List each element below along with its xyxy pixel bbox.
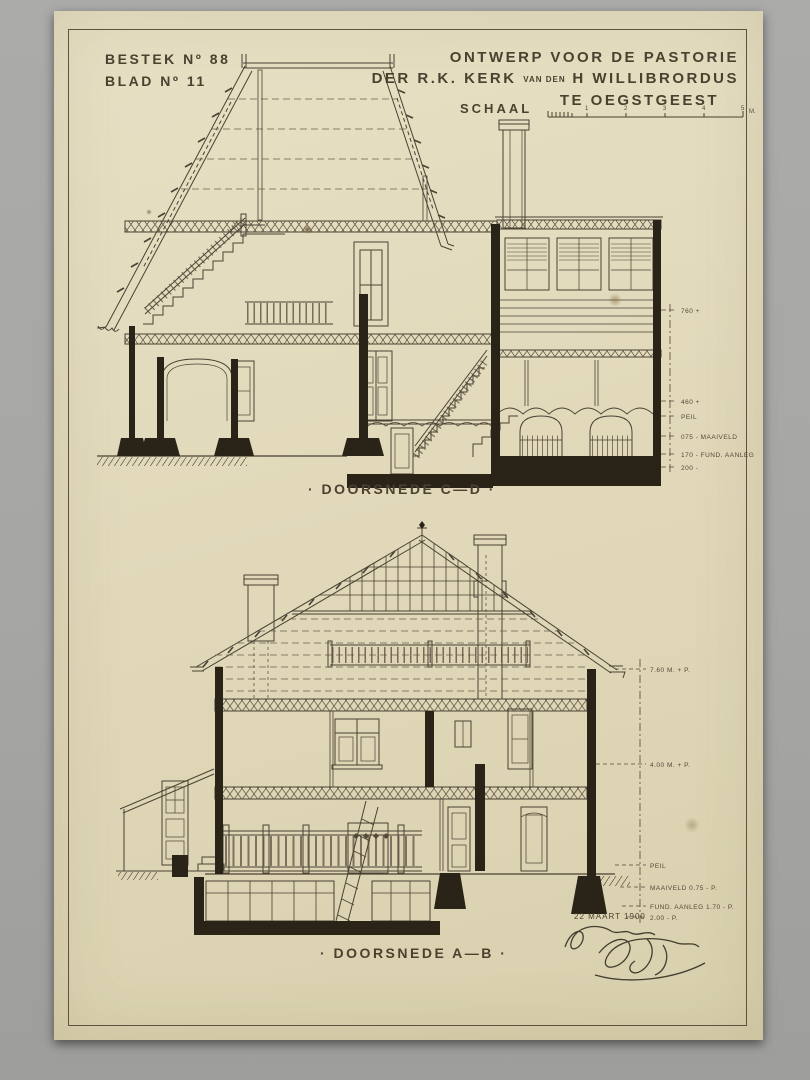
level-label-cd-2: 460 + — [681, 399, 700, 406]
signature-pastor-icon — [599, 939, 699, 975]
level-label-cd-1: 760 + — [681, 308, 700, 315]
level-label-ab-2: 4.00 M. + P. — [650, 762, 690, 769]
ground-floor-ab — [223, 799, 547, 873]
caption-doorsnede-ab: · DOORSNEDE A—B · — [320, 945, 507, 961]
level-label-cd-5: 170 - FUND. AANLEG — [681, 452, 754, 459]
roof-cd — [97, 54, 454, 331]
caption-doorsnede-cd: · DOORSNEDE C—D · — [308, 481, 496, 497]
cellar-ab — [206, 801, 430, 921]
chimney-cd — [499, 120, 529, 228]
attic-interior-ab — [215, 619, 587, 691]
level-label-ab-5: FUND. AANLEG 1.70 - P. — [650, 904, 734, 911]
main-staircase-cd — [413, 350, 487, 464]
attic-balustrade-ab — [328, 641, 530, 667]
attic-interior-cd — [181, 70, 428, 221]
signature-flourish-icon — [595, 963, 705, 980]
floor-joist-bands-ab — [215, 699, 587, 799]
floor-joist-bands-cd — [125, 220, 661, 357]
chimneys-ab — [244, 535, 506, 699]
level-label-cd-3: PEIL — [681, 414, 697, 421]
level-label-ab-4: MAAIVELD 0.75 - P. — [650, 885, 717, 892]
ground-line-left-cd — [97, 456, 347, 466]
level-label-cd-4: 075 - MAAIVELD — [681, 434, 738, 441]
drawing-sheet: BESTEK Nº 88 BLAD Nº 11 ONTWERP VOOR DE … — [54, 11, 763, 1040]
scale-unit: M. — [749, 109, 756, 115]
section-drawing-ab: 7.60 M. + P. 4.00 M. + P. PEIL MAAIVELD … — [110, 519, 760, 939]
signatures — [559, 919, 719, 989]
section-drawing-cd: 760 + 460 + PEIL 075 - MAAIVELD 170 - FU… — [95, 54, 750, 504]
scanned-drawing-photo: { "sheet": { "bestek": "BESTEK Nº 88", "… — [0, 0, 810, 1080]
signature-architect-icon — [565, 927, 655, 949]
balustrade-upper-cd — [245, 302, 333, 324]
roof-ab — [190, 521, 625, 678]
ground-floor-cd — [162, 351, 491, 424]
level-label-ab-1: 7.60 M. + P. — [650, 667, 690, 674]
level-label-ab-3: PEIL — [650, 863, 666, 870]
level-lines-cd — [661, 304, 677, 472]
level-label-cd-6: 200 - — [681, 465, 698, 472]
annex-ab — [116, 769, 224, 871]
right-wing-cd — [473, 217, 663, 457]
